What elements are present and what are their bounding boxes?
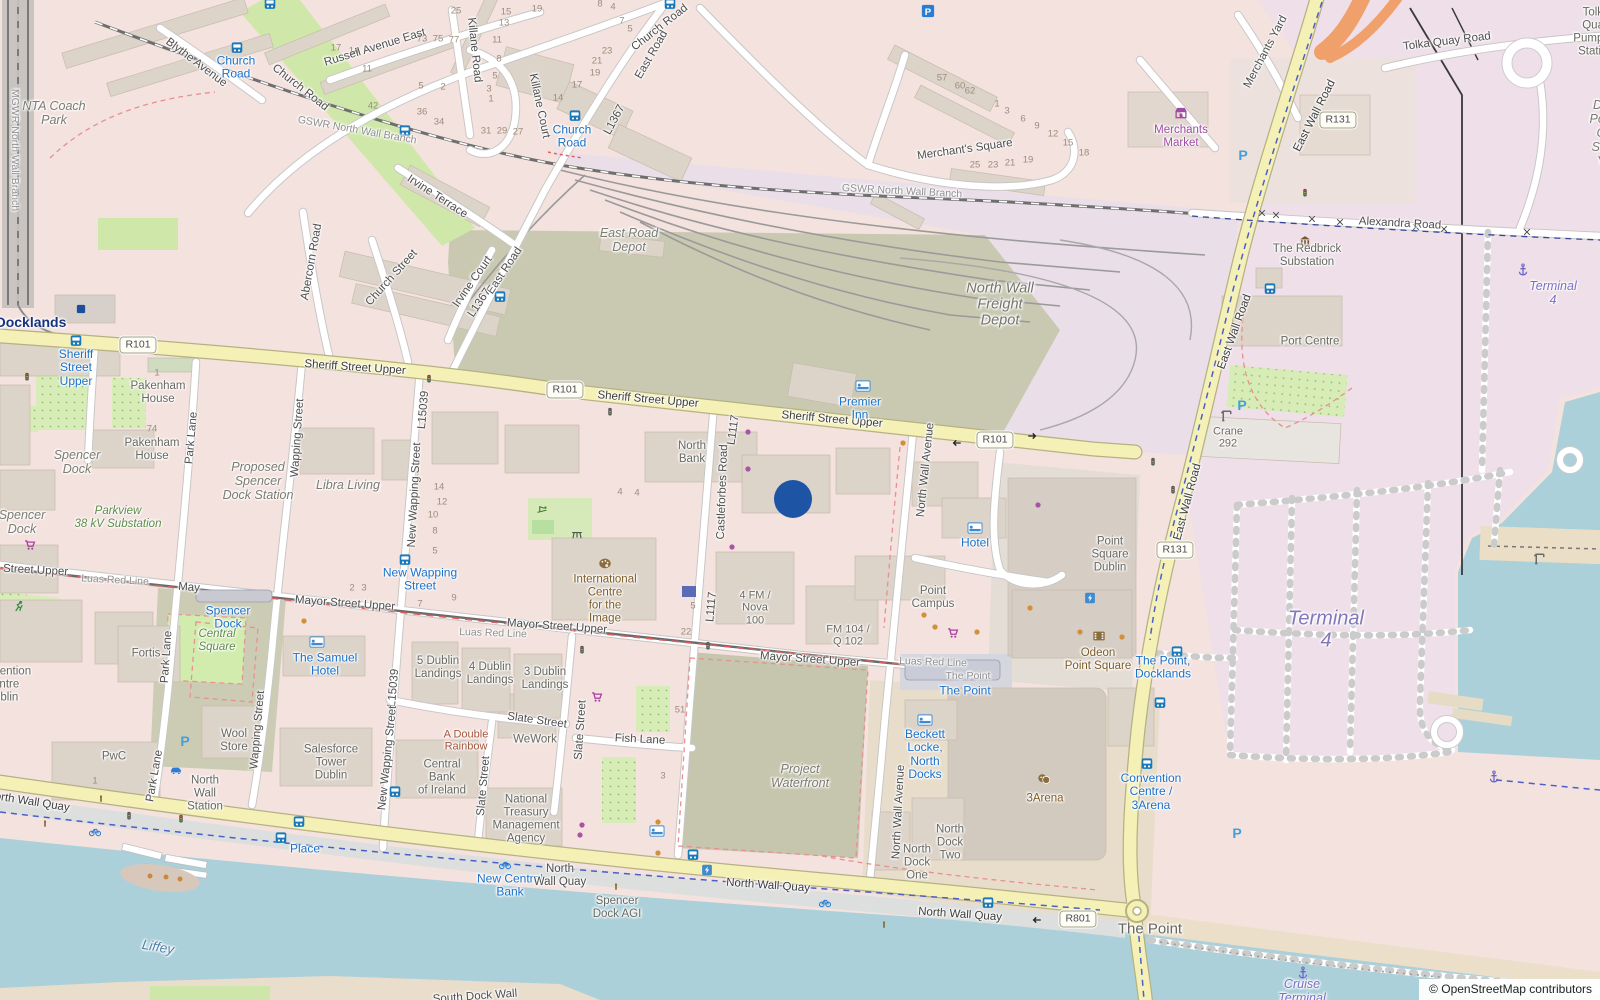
merchants-market-label: Merchants Market <box>1154 124 1208 150</box>
hn-14b-label: 14 <box>553 94 564 105</box>
spencer-dock-area-label: Spencer Dock <box>54 448 101 476</box>
hn-15b-label: 15 <box>1063 139 1074 150</box>
hn-9b-label: 9 <box>451 594 456 605</box>
crane-292-label: Crane 292 <box>1213 426 1243 451</box>
sheriff-street-upper-3-label: Sheriff Street Upper <box>781 409 883 431</box>
hn-42-label: 42 <box>368 102 379 113</box>
convention-centre-3arena-label: Convention Centre / 3Arena <box>1121 772 1182 812</box>
odeon-point-square-label: Odeon Point Square <box>1065 647 1132 673</box>
north-wall-avenue-2-label: North Wall Avenue <box>890 764 908 859</box>
hn-51-label: 51 <box>675 706 686 717</box>
hn-23b-label: 23 <box>988 161 999 172</box>
hn-77-label: 77 <box>449 36 460 47</box>
hn-34-label: 34 <box>434 118 445 129</box>
hn-22-label: 22 <box>681 628 692 639</box>
north-wall-station-label: North Wall Station <box>187 775 223 814</box>
project-waterfront-label: Project Waterfront <box>771 762 829 790</box>
hn-4b-label: 4 <box>617 488 622 499</box>
3-dublin-landings-label: 3 Dublin Landings <box>522 666 569 692</box>
map-container[interactable]: P P <box>0 0 1600 1000</box>
the-point-docklands-label: The Point, Docklands <box>1135 655 1191 682</box>
the-point-stop-label: The Point <box>939 684 990 697</box>
hn-11-label: 11 <box>362 65 372 76</box>
l1117-ref-label: L1117 <box>726 414 743 446</box>
mayor-street-upper-3-label: Mayor Street Upper <box>759 650 860 670</box>
tolka-pumping-station-label: Tolka Quay Pumping Station <box>1573 6 1600 58</box>
east-wall-road-label: East Wall Road <box>1291 78 1338 154</box>
hn-25-label: 25 <box>451 7 462 18</box>
hn-14-label: 14 <box>349 47 360 58</box>
hotel-point-label: Hotel <box>961 536 989 549</box>
hn-73-label: 73 <box>417 35 428 46</box>
irvine-court-label: Irvine Court <box>451 254 496 310</box>
spencer-dock-area-2-label: Spencer Dock <box>0 508 45 536</box>
central-bank-of-ireland-label: Central Bank of Ireland <box>418 759 466 798</box>
hn-1-pak-label: 1 <box>154 369 159 380</box>
hn-5e-label: 5 <box>690 602 695 613</box>
hn-62-label: 62 <box>965 87 976 98</box>
wework-label: WeWork <box>513 734 557 747</box>
terminal-4-label: Terminal 4 <box>1529 279 1576 307</box>
killane-road-label: Killane Road <box>464 17 484 83</box>
fortis-label: Fortis <box>132 648 161 661</box>
hn-7-label: 7 <box>619 17 624 28</box>
fm104-q102-label: FM 104 / Q 102 <box>826 624 869 649</box>
point-square-dublin-label: Point Square Dublin <box>1091 536 1128 575</box>
gswr-north-wall-branch-label: GSWR North Wall Branch <box>297 115 418 147</box>
l1367-ref-label: L1367 <box>602 103 628 137</box>
attribution-copyright: © <box>1429 982 1438 996</box>
park-lane-label: Park Lane <box>183 411 200 464</box>
hn-14c-label: 14 <box>434 483 445 494</box>
mayor-street-upper-2-label: Mayor Street Upper <box>506 617 607 637</box>
north-wall-freight-depot-label: North Wall Freight Depot <box>966 281 1033 330</box>
hn-5d-label: 5 <box>432 547 437 558</box>
hn-5-label: 5 <box>492 72 497 83</box>
tolka-quay-road-label: Tolka Quay Road <box>1402 30 1491 54</box>
north-wall-quay-label: North Wall Quay <box>726 877 811 896</box>
hn-19c-label: 19 <box>1023 156 1034 167</box>
map-labels-layer: NTA Coach ParkMGWR North Wall BranchBlyt… <box>0 0 1600 1000</box>
place-stop-label: Place <box>290 842 320 855</box>
osm-link[interactable]: OpenStreetMap <box>1441 982 1526 996</box>
hn-10-label: 10 <box>428 511 439 522</box>
spencer-dock-stop-label: Spencer Dock <box>206 605 251 632</box>
hn-18-label: 18 <box>1079 149 1090 160</box>
l1367-ref-2-label: L1367 <box>466 286 495 320</box>
hn-8c-label: 8 <box>432 527 437 538</box>
convention-centre-dublin-label: Convention Centre Dublin <box>0 666 31 705</box>
hn-2-label: 2 <box>440 83 445 94</box>
pakenham-house-label: Pakenham House <box>131 380 186 406</box>
r801-badge-label: R801 <box>1059 911 1096 928</box>
r101-badge-2-label: R101 <box>546 382 583 399</box>
hn-4c-label: 4 <box>634 489 639 500</box>
castleforbes-road-label: Castleforbes Road <box>715 444 731 540</box>
hn-12-label: 12 <box>1048 130 1059 141</box>
east-road-label: East Road <box>633 29 671 82</box>
hn-8b-label: 8 <box>597 0 602 10</box>
hn-75-label: 75 <box>433 35 444 46</box>
hn-19b-label: 19 <box>590 69 601 80</box>
luas-red-line-3-label: Luas Red Line <box>899 656 967 670</box>
a-double-rainbow-label: A Double Rainbow <box>444 729 489 754</box>
park-lane-2-label: Park Lane <box>159 630 176 683</box>
new-wapping-street-stop-label: New Wapping Street <box>383 567 457 594</box>
merchants-yard-label: Merchants Yard <box>1242 14 1291 91</box>
north-bank-label: North Bank <box>678 440 706 466</box>
salesforce-tower-label: Salesforce Tower Dublin <box>304 744 358 783</box>
may-fragment-label: May <box>178 581 201 595</box>
hn-11b-label: 11 <box>492 36 502 47</box>
r131-badge-label: R131 <box>1319 112 1356 129</box>
new-wapping-street-label: New Wapping Street <box>406 442 424 548</box>
new-wapping-street-2-label: New Wapping Street <box>376 705 400 811</box>
east-wall-road-2-label: East Wall Road <box>1215 293 1254 371</box>
east-road-depot-label: East Road Depot <box>600 226 658 254</box>
attribution-suffix: contributors <box>1529 982 1592 996</box>
hn-29-label: 29 <box>497 127 508 138</box>
l15039-ref-label: L15039 <box>416 390 432 429</box>
spencer-dock-agi-label: Spencer Dock AGI <box>593 895 642 921</box>
hn-21b-label: 21 <box>1005 159 1016 170</box>
north-wall-quay-lbl-label: North Wall Quay <box>534 863 587 889</box>
irvine-terrace-label: Irvine Terrace <box>404 173 469 222</box>
hn-5b-label: 5 <box>418 82 423 93</box>
gswr-north-wall-branch-2-label: GSWR North Wall Branch <box>842 183 963 201</box>
north-wall-quay-w-label: North Wall Quay <box>0 789 70 815</box>
hn-1b-label: 1 <box>994 100 999 111</box>
church-street-label: Church Street <box>363 247 420 308</box>
hn-3d-label: 3 <box>660 772 665 783</box>
ntma-label: National Treasury Management Agency <box>492 793 559 845</box>
church-road-stop-2-label: Church Road <box>553 124 592 151</box>
sheriff-street-upper-2-label: Sheriff Street Upper <box>597 389 699 411</box>
point-campus-label: Point Campus <box>912 585 955 611</box>
abercorn-road-label: Abercorn Road <box>299 223 325 301</box>
sheriff-street-upper-label: Sheriff Street Upper <box>304 358 406 378</box>
redbrick-substation-label: The Redbrick Substation <box>1273 243 1341 269</box>
hn-19-label: 19 <box>532 5 543 16</box>
slate-street-label: Slate Street <box>506 710 567 731</box>
new-central-bank-label: New Central Bank <box>477 873 543 900</box>
hn-21-label: 21 <box>592 57 603 68</box>
hn-17-label: 17 <box>331 44 342 55</box>
church-road-2-label: Church Road <box>629 2 690 54</box>
r101-badge-3-label: R101 <box>976 432 1013 449</box>
pwc-label: PwC <box>102 751 126 764</box>
dublin-port-yard-label: Du Port C Sto Y <box>1590 98 1600 168</box>
hn-15-label: 15 <box>501 8 512 19</box>
l15039-ref-2-label: L15039 <box>386 668 402 707</box>
hn-60-label: 60 <box>955 82 966 93</box>
hn-13-label: 13 <box>499 19 510 30</box>
church-road-label: Church Road <box>269 62 330 114</box>
mayor-street-upper-w-label: Mayor Street Upper <box>0 561 68 579</box>
hn-74-label: 74 <box>147 425 158 436</box>
nta-coach-park-label: NTA Coach Park <box>22 99 85 127</box>
sheriff-street-upper-stop-label: Sheriff Street Upper <box>59 348 93 388</box>
hn-1c-label: 1 <box>92 777 97 788</box>
luas-red-line-label: Luas Red Line <box>81 573 149 588</box>
premier-inn-label: Premier Inn <box>839 396 881 423</box>
hn-27-label: 27 <box>513 128 524 139</box>
libra-living-label: Libra Living <box>316 478 380 492</box>
park-lane-3-label: Park Lane <box>144 749 166 803</box>
east-wall-road-3-label: East Wall Road <box>1172 462 1205 541</box>
cruise-terminal-label: Cruise Terminal <box>1278 977 1325 1000</box>
wool-store-label: Wool Store <box>220 728 248 754</box>
hn-12b-label: 12 <box>437 498 448 509</box>
pakenham-house-74-label: Pakenham House <box>125 437 180 463</box>
south-dock-wall-label: South Dock Wall <box>432 988 517 1000</box>
wapping-street-label: Wapping Street <box>289 398 307 478</box>
hn-17b-label: 17 <box>572 81 583 92</box>
5-dublin-landings-label: 5 Dublin Landings <box>415 655 462 681</box>
fish-lane-label: Fish Lane <box>614 732 665 748</box>
4fm-nova-label: 4 FM / Nova 100 <box>739 590 770 627</box>
attribution: © OpenStreetMap contributors <box>1419 979 1600 1000</box>
hn-36-label: 36 <box>417 108 428 119</box>
hn-31-label: 31 <box>481 127 492 138</box>
north-dock-two-label: North Dock Two <box>936 824 964 863</box>
hn-6-label: 6 <box>1020 115 1025 126</box>
hn-7b-label: 7 <box>417 600 422 611</box>
slate-street-v-label: Slate Street <box>572 700 589 761</box>
proposed-spencer-dock-station-label: Proposed Spencer Dock Station <box>223 460 294 502</box>
north-wall-avenue-label: North Wall Avenue <box>915 422 938 517</box>
mgwr-north-wall-branch-label: MGWR North Wall Branch <box>8 89 20 211</box>
beckett-locke-label: Beckett Locke, North Docks <box>905 728 945 782</box>
r131-badge-2-label: R131 <box>1156 542 1193 559</box>
terminal-4-lg-label: Terminal 4 <box>1288 608 1364 653</box>
hn-57-label: 57 <box>937 74 948 85</box>
the-point-junction-label: The Point <box>1118 922 1182 939</box>
r101-badge-label: R101 <box>119 337 156 354</box>
north-dock-one-label: North Dock One <box>903 844 931 883</box>
north-wall-quay-2-label: North Wall Quay <box>918 906 1003 925</box>
hn-23-label: 23 <box>602 47 613 58</box>
hn-4-label: 4 <box>610 3 615 14</box>
3arena-label: 3Arena <box>1026 793 1063 806</box>
luas-red-line-2-label: Luas Red Line <box>459 627 527 641</box>
hn-3-label: 3 <box>486 85 491 96</box>
hn-1-label: 1 <box>488 95 493 106</box>
port-centre-label: Port Centre <box>1281 336 1340 349</box>
intl-centre-image-label: International Centre for the Image <box>573 573 636 625</box>
the-point-platform-label: The Point <box>946 671 991 683</box>
liffey-label: Liffey <box>141 937 175 957</box>
4-dublin-landings-label: 4 Dublin Landings <box>467 661 514 687</box>
hn-25b-label: 25 <box>970 161 981 172</box>
hn-3c-label: 3 <box>361 584 366 595</box>
hn-3b-label: 3 <box>1004 107 1009 118</box>
hn-9-label: 9 <box>1034 122 1039 133</box>
slate-street-v2-label: Slate Street <box>475 756 493 817</box>
l1117-ref-2-label: L1117 <box>704 591 719 622</box>
mayor-street-upper-label: Mayor Street Upper <box>294 594 395 614</box>
docklands-station-label: Docklands <box>0 315 66 331</box>
hn-5c-label: 5 <box>627 25 632 36</box>
central-square-label: Central Square <box>198 628 235 654</box>
russell-avenue-east-label: Russell Avenue East <box>323 26 427 69</box>
church-road-stop-label: Church Road <box>217 55 256 82</box>
hn-8-label: 8 <box>496 55 501 66</box>
killane-court-label: Killane Court <box>526 72 552 139</box>
hn-2b-label: 2 <box>349 584 354 595</box>
parkview-substation-label: Parkview 38 kV Substation <box>75 505 162 531</box>
east-road-2-label: East Road <box>485 245 526 297</box>
samuel-hotel-label: The Samuel Hotel <box>293 652 358 679</box>
blythe-avenue-label: Blythe Avenue <box>163 36 229 90</box>
wapping-street-2-label: Wapping Street <box>248 690 268 770</box>
merchants-square-label: Merchant's Square <box>916 137 1013 163</box>
alexandra-road-label: Alexandra Road <box>1358 215 1441 232</box>
